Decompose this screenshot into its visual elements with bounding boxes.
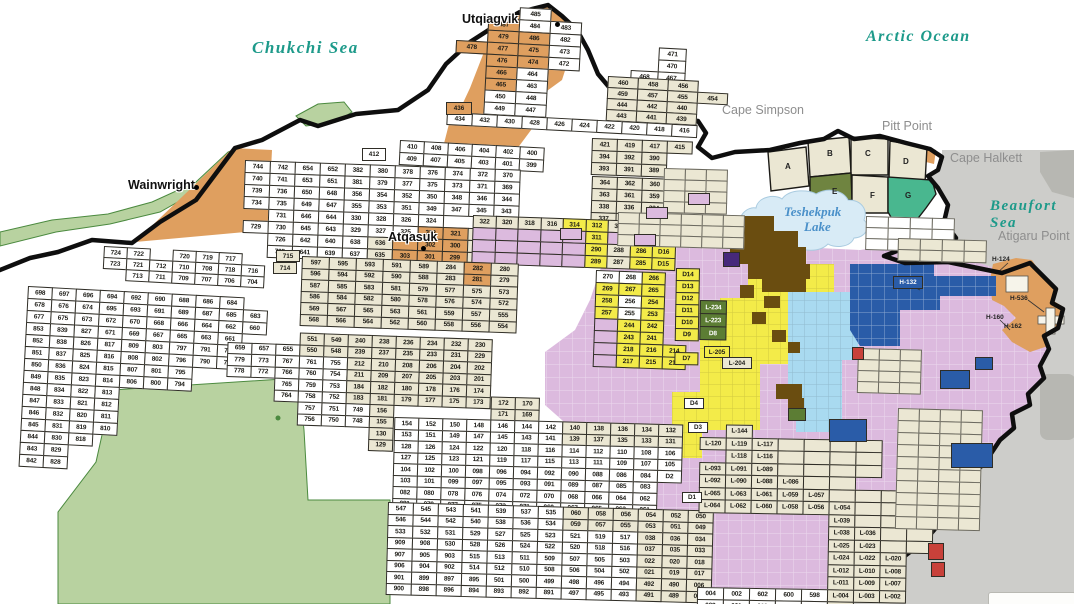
offshore-land-shoal: [1040, 374, 1074, 440]
tract-A: [768, 147, 809, 191]
map-canvas[interactable]: 4854874844834794864824784774754734764744…: [0, 0, 1074, 604]
tract-C: [851, 137, 888, 175]
green-land-southwest: [58, 378, 390, 604]
tract-G: [888, 177, 936, 226]
tract-B: [808, 137, 851, 177]
green-land-dot: [276, 416, 281, 421]
base-map-layer: [0, 0, 1074, 604]
orange-patch-utqiagvik: [455, 6, 578, 120]
atigaru-white-tract: [1006, 276, 1028, 292]
orange-patch-utqiagvik-south: [426, 118, 540, 214]
